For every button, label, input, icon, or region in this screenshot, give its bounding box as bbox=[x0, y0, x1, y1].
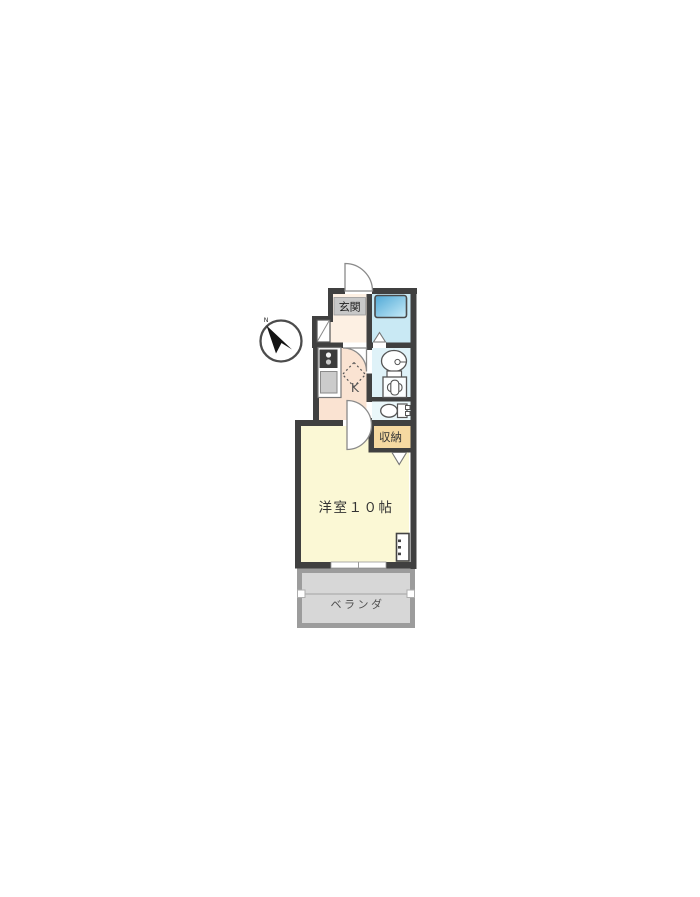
kitchen-label: K bbox=[351, 380, 360, 395]
compass-north-label: N bbox=[264, 316, 269, 324]
wall-top-right bbox=[372, 288, 417, 294]
pipe-space-mark-2 bbox=[398, 546, 401, 549]
wall-storage-bottom bbox=[369, 448, 412, 453]
pipe-space bbox=[397, 534, 410, 562]
stove bbox=[320, 350, 338, 369]
floorplan-drawing: 玄関 K 収納 洋室１０帖 ベランダ N bbox=[0, 0, 700, 897]
pipe-space-mark-1 bbox=[398, 540, 401, 543]
veranda-notch-left bbox=[298, 590, 306, 598]
front-door-swing bbox=[345, 264, 373, 292]
main-room-window bbox=[331, 562, 386, 568]
wall-mainroom-top-left bbox=[295, 420, 343, 426]
veranda-notch-right bbox=[407, 590, 415, 598]
stove-burner-2 bbox=[326, 359, 331, 364]
toilet-fitting-2 bbox=[406, 412, 411, 416]
toilet-bowl bbox=[381, 404, 398, 417]
main-room-label: 洋室１０帖 bbox=[319, 499, 394, 516]
stove-burner-1 bbox=[326, 352, 331, 357]
toilet-fixture bbox=[381, 404, 410, 418]
washbasin-drain bbox=[395, 359, 400, 364]
wall-bath-sill-right bbox=[386, 343, 412, 349]
wall-shoebox-left bbox=[312, 316, 317, 346]
washer-drain-cross-v bbox=[391, 380, 399, 395]
toilet-fitting-1 bbox=[406, 406, 411, 410]
entrance-label: 玄関 bbox=[339, 300, 361, 314]
kitchen-sink bbox=[321, 372, 338, 394]
wall-center-vertical-upper bbox=[367, 294, 373, 350]
washbasin bbox=[382, 351, 407, 372]
storage-label: 収納 bbox=[379, 430, 402, 444]
wall-right bbox=[411, 288, 417, 569]
veranda-label: ベランダ bbox=[331, 597, 385, 611]
pipe-space-mark-3 bbox=[398, 553, 401, 556]
compass: N bbox=[261, 316, 302, 362]
wall-mainroom-left bbox=[295, 420, 301, 569]
floorplan-page: 玄関 K 収納 洋室１０帖 ベランダ N bbox=[0, 0, 700, 897]
entrance-cabinet bbox=[317, 320, 330, 342]
bathtub bbox=[375, 296, 407, 318]
